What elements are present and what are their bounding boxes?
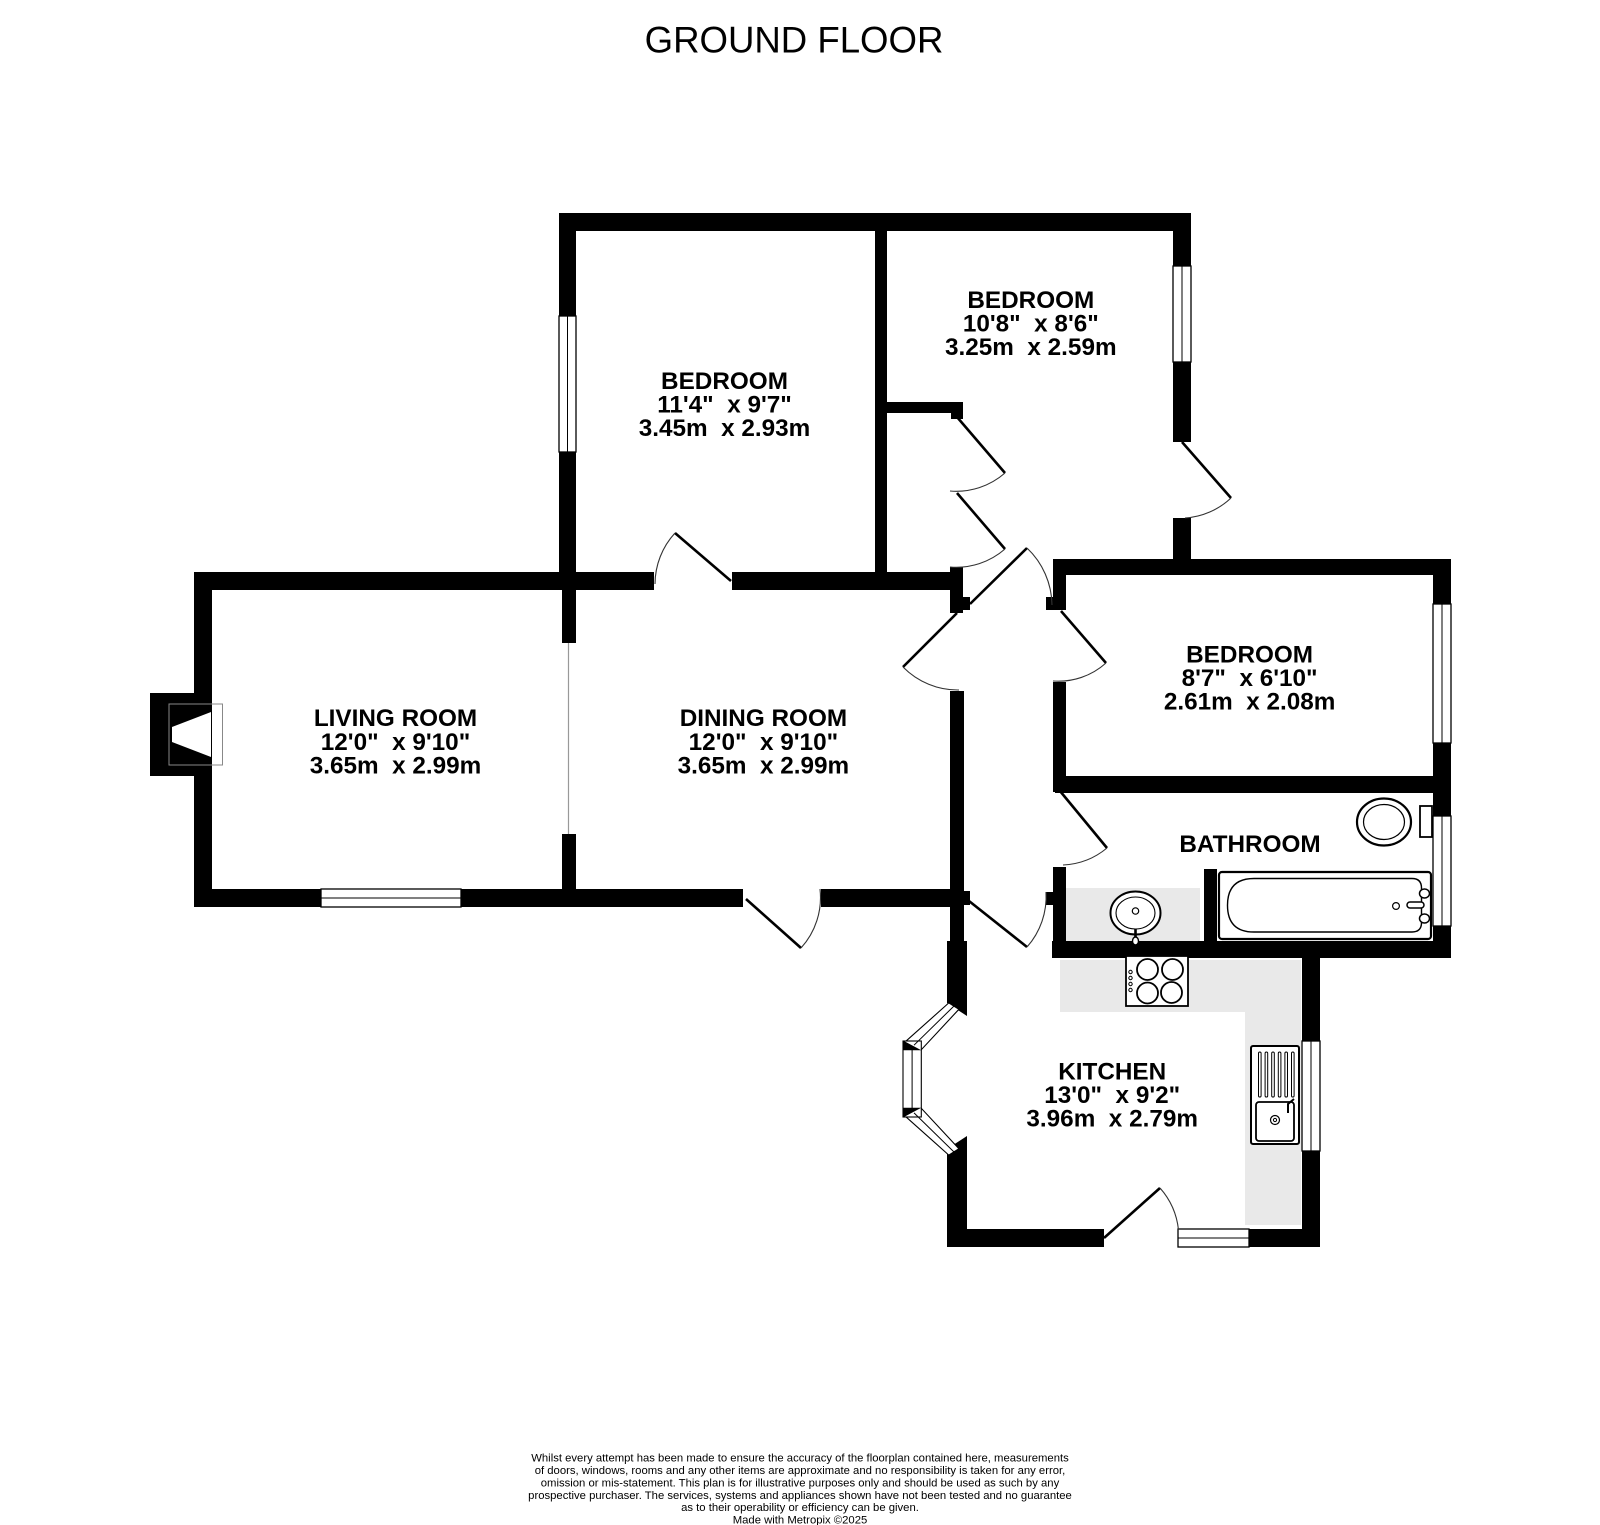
svg-text:GROUND FLOOR: GROUND FLOOR xyxy=(645,20,944,61)
svg-text:prospective purchaser. The ser: prospective purchaser. The services, sys… xyxy=(528,1490,1072,1502)
svg-text:as to their operability or eff: as to their operability or efficiency ca… xyxy=(681,1502,919,1514)
svg-text:3.96m x 2.79m: 3.96m x 2.79m xyxy=(1026,1106,1198,1133)
svg-text:3.65m x 2.99m: 3.65m x 2.99m xyxy=(310,752,482,779)
svg-text:3.45m x 2.93m: 3.45m x 2.93m xyxy=(639,415,811,442)
svg-text:3.65m x 2.99m: 3.65m x 2.99m xyxy=(678,752,850,779)
svg-text:Made with Metropix ©2025: Made with Metropix ©2025 xyxy=(733,1515,868,1525)
svg-text:omission or mis-statement. Thi: omission or mis-statement. This plan is … xyxy=(541,1477,1060,1489)
svg-text:BATHROOM: BATHROOM xyxy=(1179,831,1320,858)
svg-text:3.25m x 2.59m: 3.25m x 2.59m xyxy=(945,334,1117,361)
svg-text:Whilst every attempt has been: Whilst every attempt has been made to en… xyxy=(531,1453,1069,1465)
svg-text:2.61m x 2.08m: 2.61m x 2.08m xyxy=(1164,689,1336,716)
svg-text:of doors, windows, rooms and a: of doors, windows, rooms and any other i… xyxy=(535,1465,1066,1477)
